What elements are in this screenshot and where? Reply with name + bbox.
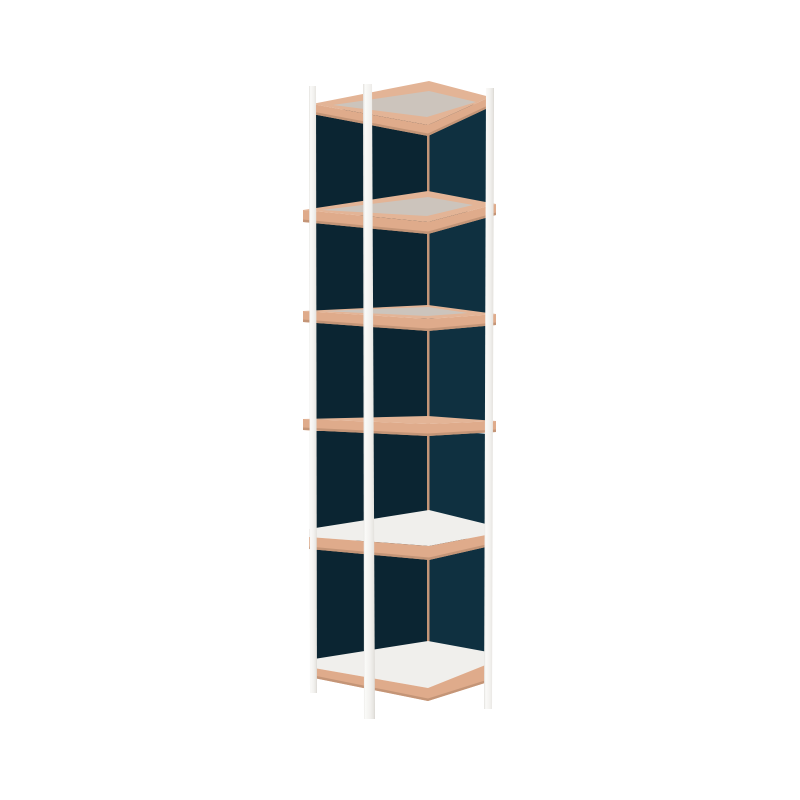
back-corner-seam bbox=[427, 94, 431, 650]
bay3-right-panel bbox=[430, 318, 489, 422]
bay4-right-panel bbox=[430, 429, 489, 525]
shelf-unit-svg bbox=[0, 0, 800, 800]
canvas-background bbox=[0, 0, 800, 800]
shelf-unit-render bbox=[0, 0, 800, 800]
post-left bbox=[309, 86, 317, 693]
